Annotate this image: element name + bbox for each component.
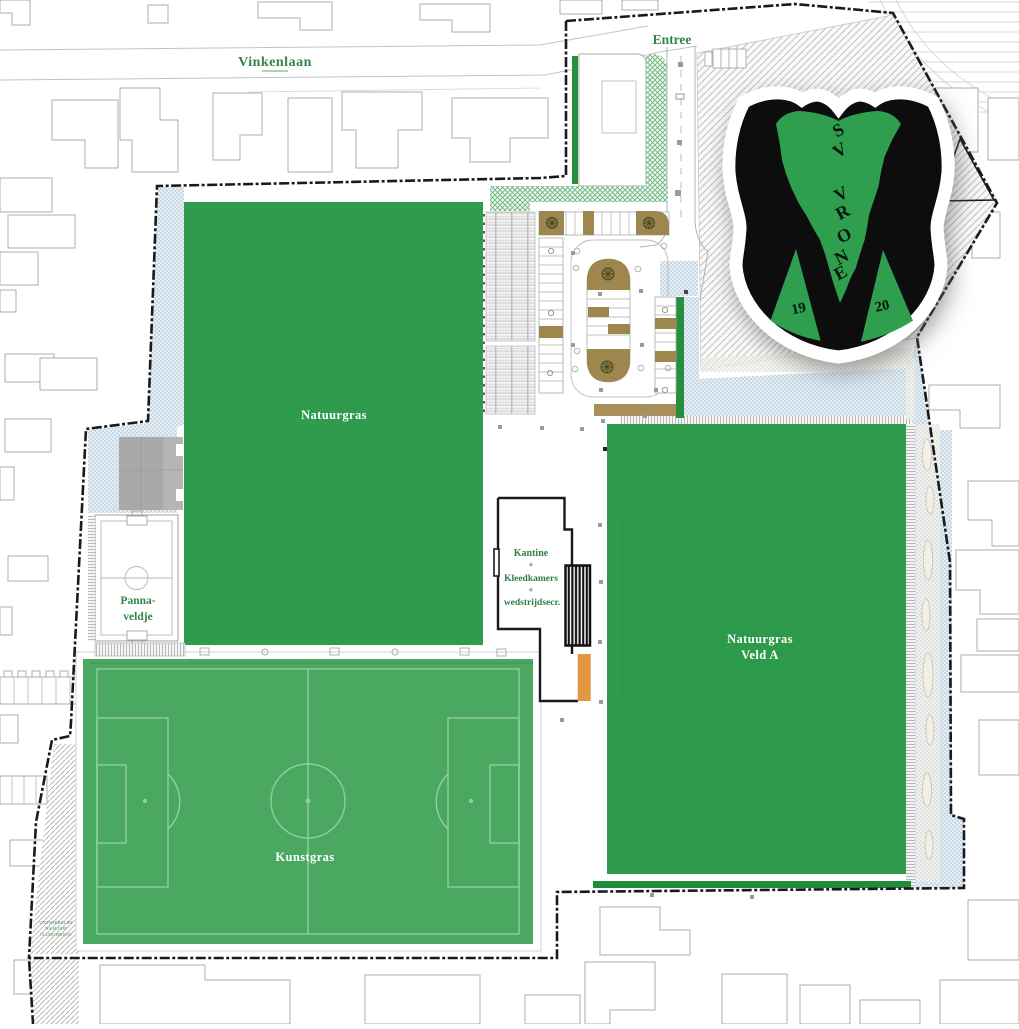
svg-text:Kantine: Kantine (514, 548, 549, 559)
svg-text:Natuurgras: Natuurgras (727, 632, 793, 646)
svg-text:Veld A: Veld A (741, 648, 779, 662)
svg-text:Natuurgras: Natuurgras (301, 408, 367, 422)
svg-text:+: + (528, 585, 533, 595)
svg-text:Kunstgras: Kunstgras (275, 850, 334, 864)
svg-text:veldje: veldje (123, 611, 152, 623)
svg-text:Kleedkamers: Kleedkamers (504, 574, 558, 584)
svg-text:CLUBGEBOUW: CLUBGEBOUW (40, 932, 73, 937)
svg-text:Panna-: Panna- (120, 595, 155, 607)
svg-text:Vinkenlaan: Vinkenlaan (238, 55, 312, 70)
svg-text:ONTWIKKELEN: ONTWIKKELEN (40, 920, 74, 925)
svg-text:wedstrijdsecr.: wedstrijdsecr. (504, 598, 560, 608)
svg-text:NA SLOOP: NA SLOOP (45, 926, 67, 931)
svg-text:Entree: Entree (653, 32, 692, 47)
svg-text:+: + (528, 560, 533, 570)
